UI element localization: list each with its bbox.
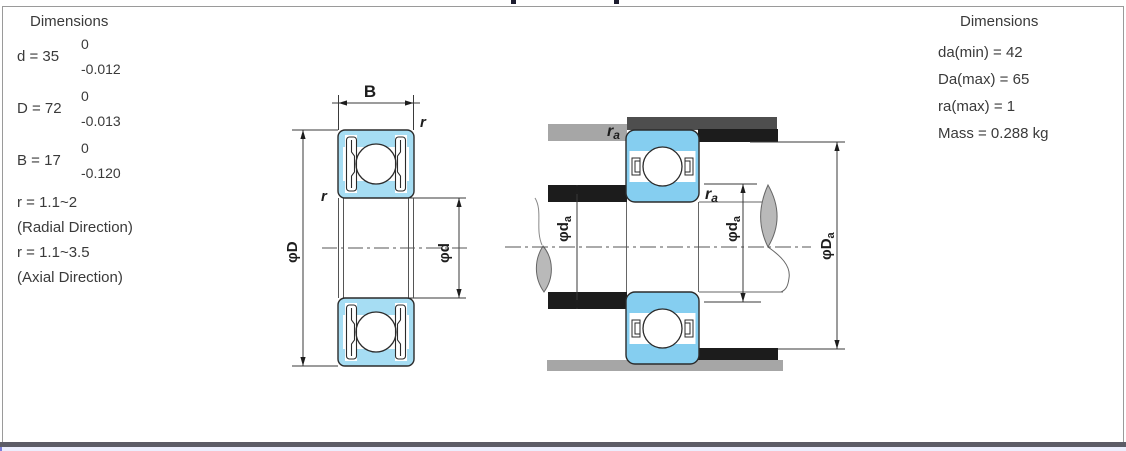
list-item: Da(max) = 65 [938, 66, 1118, 93]
note-line: (Radial Direction) [17, 215, 192, 240]
ball [356, 144, 396, 184]
tolerance-lower: -0.120 [81, 165, 121, 181]
ball [356, 312, 396, 352]
list-item: Mass = 0.288 kg [938, 120, 1118, 147]
panel-title: Dimensions [12, 10, 192, 30]
shaft-break-left [535, 198, 551, 292]
dimension-row-B: B = 17 0 -0.120 [12, 134, 192, 186]
dimension-row-D: D = 72 0 -0.013 [12, 82, 192, 134]
ball [643, 147, 682, 186]
dimension-row-d: d = 35 0 -0.012 [12, 30, 192, 82]
dimensions-panel-left: Dimensions d = 35 0 -0.012 D = 72 0 -0.0… [12, 10, 192, 290]
housing-bore-top [627, 117, 777, 130]
housing-shoulder-label: φDa [818, 231, 837, 260]
bearing-section-lower [338, 298, 414, 366]
tolerance-upper: 0 [81, 88, 121, 104]
housing-shoulder-top [698, 129, 778, 142]
tolerance-upper: 0 [81, 140, 121, 156]
shaft-shoulder-dimension-left [574, 185, 579, 309]
corner-radius-label-side: r [321, 188, 328, 205]
panel-title: Dimensions [918, 10, 1118, 30]
fillet-radius-label-mid: ra [705, 186, 718, 205]
note-line: r = 1.1~2 [17, 190, 192, 215]
outer-diameter-label: φD [284, 241, 301, 263]
note-line: (Axial Direction) [17, 265, 192, 290]
housing-shoulder-bottom [698, 348, 778, 361]
clipped-title-fragment [511, 0, 516, 4]
tolerance-stack: 0 -0.120 [81, 140, 121, 181]
bore-diameter-label: φd [436, 243, 453, 263]
dimension-label: B = 17 [17, 152, 81, 169]
tolerance-lower: -0.013 [81, 113, 121, 129]
dimension-label: D = 72 [17, 100, 81, 117]
clipped-title-fragment [614, 0, 619, 4]
bearing-lower [626, 292, 699, 364]
list-item: ra(max) = 1 [938, 93, 1118, 120]
tolerance-stack: 0 -0.013 [81, 88, 121, 129]
corner-radius-label-top: r [420, 114, 427, 131]
dimension-label: d = 35 [17, 48, 81, 65]
dimensions-panel-right: Dimensions da(min) = 42 Da(max) = 65 ra(… [918, 10, 1118, 147]
tolerance-lower: -0.012 [81, 61, 121, 77]
radius-notes: r = 1.1~2 (Radial Direction) r = 1.1~3.5… [12, 190, 192, 290]
ball [643, 309, 682, 348]
shaft-break-right [761, 185, 790, 292]
note-line: r = 1.1~3.5 [17, 240, 192, 265]
tolerance-upper: 0 [81, 36, 121, 52]
list-item: da(min) = 42 [938, 39, 1118, 66]
mounted-bearing-diagram: φda φda φDa ra ra [505, 85, 853, 397]
bearing-cross-section-diagram: B φD φd [270, 80, 475, 375]
shaft-shoulder-bottom [548, 292, 627, 309]
shaft-shoulder-label-mid: φda [724, 215, 743, 242]
shaft-shoulder-label-left: φda [555, 215, 574, 242]
bearing-upper [626, 130, 699, 202]
next-section-strip [0, 447, 1126, 451]
width-dimension-label: B [364, 82, 376, 101]
bearing-section-upper [338, 130, 414, 198]
shaft-shoulder-top [548, 185, 627, 202]
abutment-dimension-list: da(min) = 42 Da(max) = 65 ra(max) = 1 Ma… [918, 39, 1118, 147]
tolerance-stack: 0 -0.012 [81, 36, 121, 77]
